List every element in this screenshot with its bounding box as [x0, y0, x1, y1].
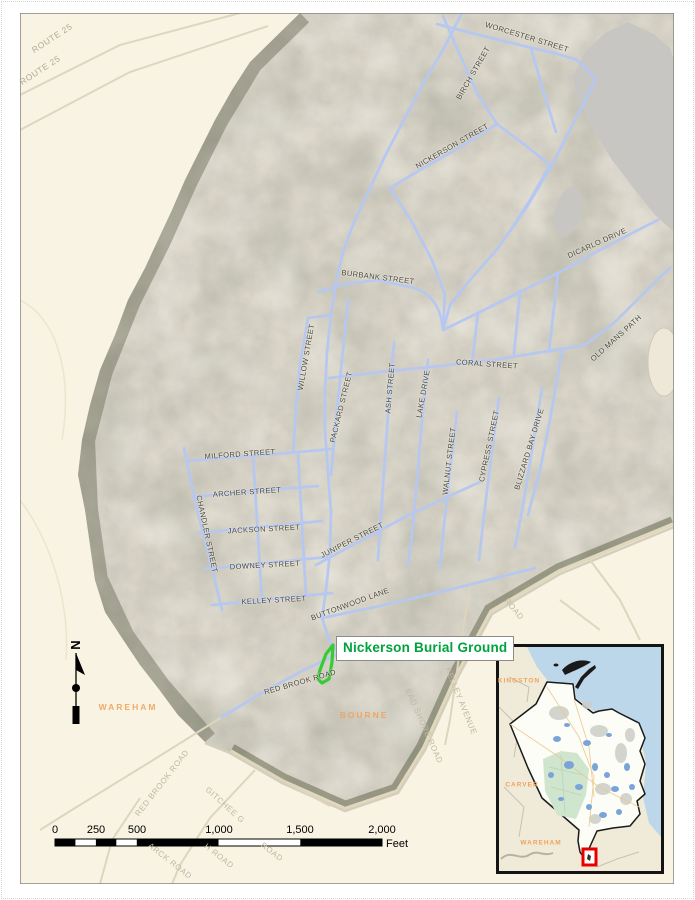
inset-locator-map — [496, 644, 664, 874]
scale-bar-unit: Feet — [386, 838, 408, 850]
scale-tick-label: 1,500 — [286, 824, 314, 836]
scale-tick-label: 0 — [52, 824, 58, 836]
inset-river — [501, 853, 553, 859]
map-document-page: { "poi": { "label": "Nickerson Burial Gr… — [0, 0, 695, 900]
scale-tick-label: 2,000 — [368, 824, 396, 836]
scale-tick-label: 1,000 — [205, 824, 233, 836]
poi-label: Nickerson Burial Ground — [343, 640, 507, 655]
inset-extent-box — [583, 849, 596, 865]
scale-tick-label: 500 — [128, 824, 146, 836]
scale-tick-label: 250 — [87, 824, 105, 836]
sand-pit — [648, 328, 680, 396]
inset-canvas — [499, 647, 661, 871]
north-arrow-letter: N — [68, 640, 83, 649]
scale-bar — [55, 839, 382, 846]
poi-callout: Nickerson Burial Ground — [336, 636, 514, 661]
